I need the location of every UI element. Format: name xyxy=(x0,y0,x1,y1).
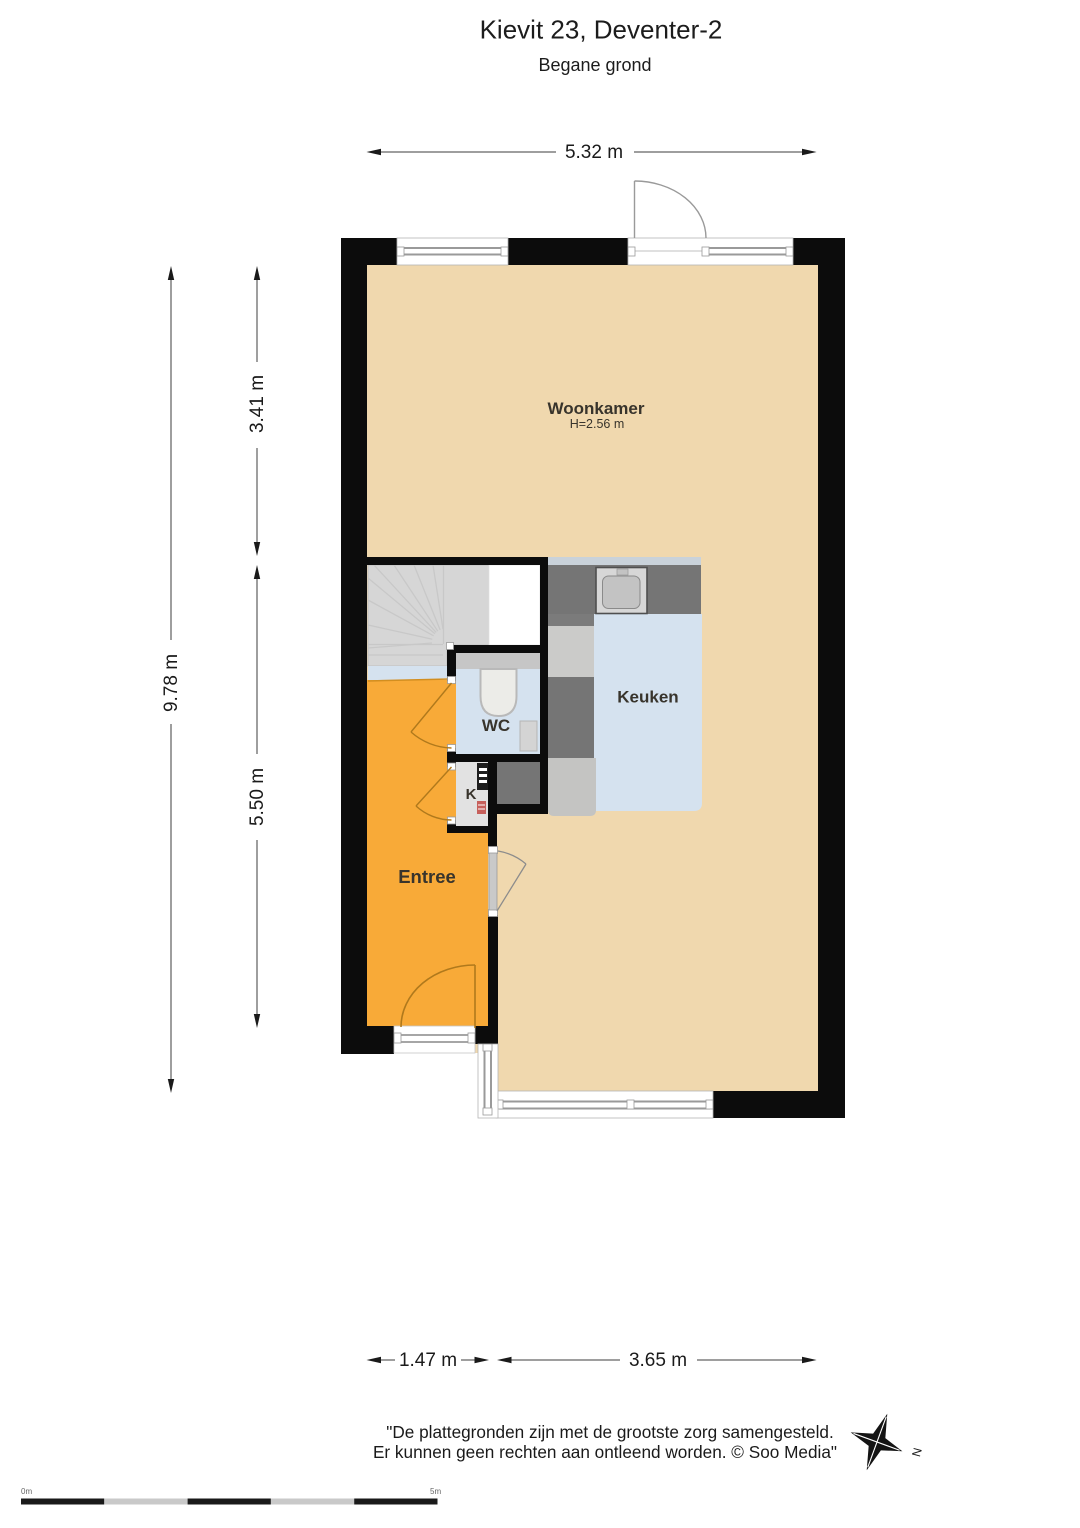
svg-text:Entree: Entree xyxy=(398,866,456,887)
svg-text:Keuken: Keuken xyxy=(617,688,678,707)
svg-text:"De plattegronden zijn met de: "De plattegronden zijn met de grootste z… xyxy=(386,1422,834,1442)
svg-text:9.78 m: 9.78 m xyxy=(161,654,182,712)
svg-text:3.41 m: 3.41 m xyxy=(247,375,268,433)
svg-text:1.47 m: 1.47 m xyxy=(399,1350,457,1371)
svg-text:5.32 m: 5.32 m xyxy=(565,142,623,163)
svg-text:H=2.56 m: H=2.56 m xyxy=(570,417,625,431)
svg-text:5m: 5m xyxy=(430,1487,441,1496)
svg-text:WC: WC xyxy=(482,716,510,735)
svg-text:K: K xyxy=(466,786,477,803)
svg-text:3.65 m: 3.65 m xyxy=(629,1350,687,1371)
svg-text:5.50 m: 5.50 m xyxy=(247,768,268,826)
svg-text:Woonkamer: Woonkamer xyxy=(548,399,645,418)
svg-text:Er kunnen geen rechten aan ont: Er kunnen geen rechten aan ontleend word… xyxy=(373,1442,837,1462)
svg-text:Begane grond: Begane grond xyxy=(538,55,651,75)
svg-text:0m: 0m xyxy=(21,1487,32,1496)
svg-text:Kievit 23, Deventer-2: Kievit 23, Deventer-2 xyxy=(480,15,723,45)
